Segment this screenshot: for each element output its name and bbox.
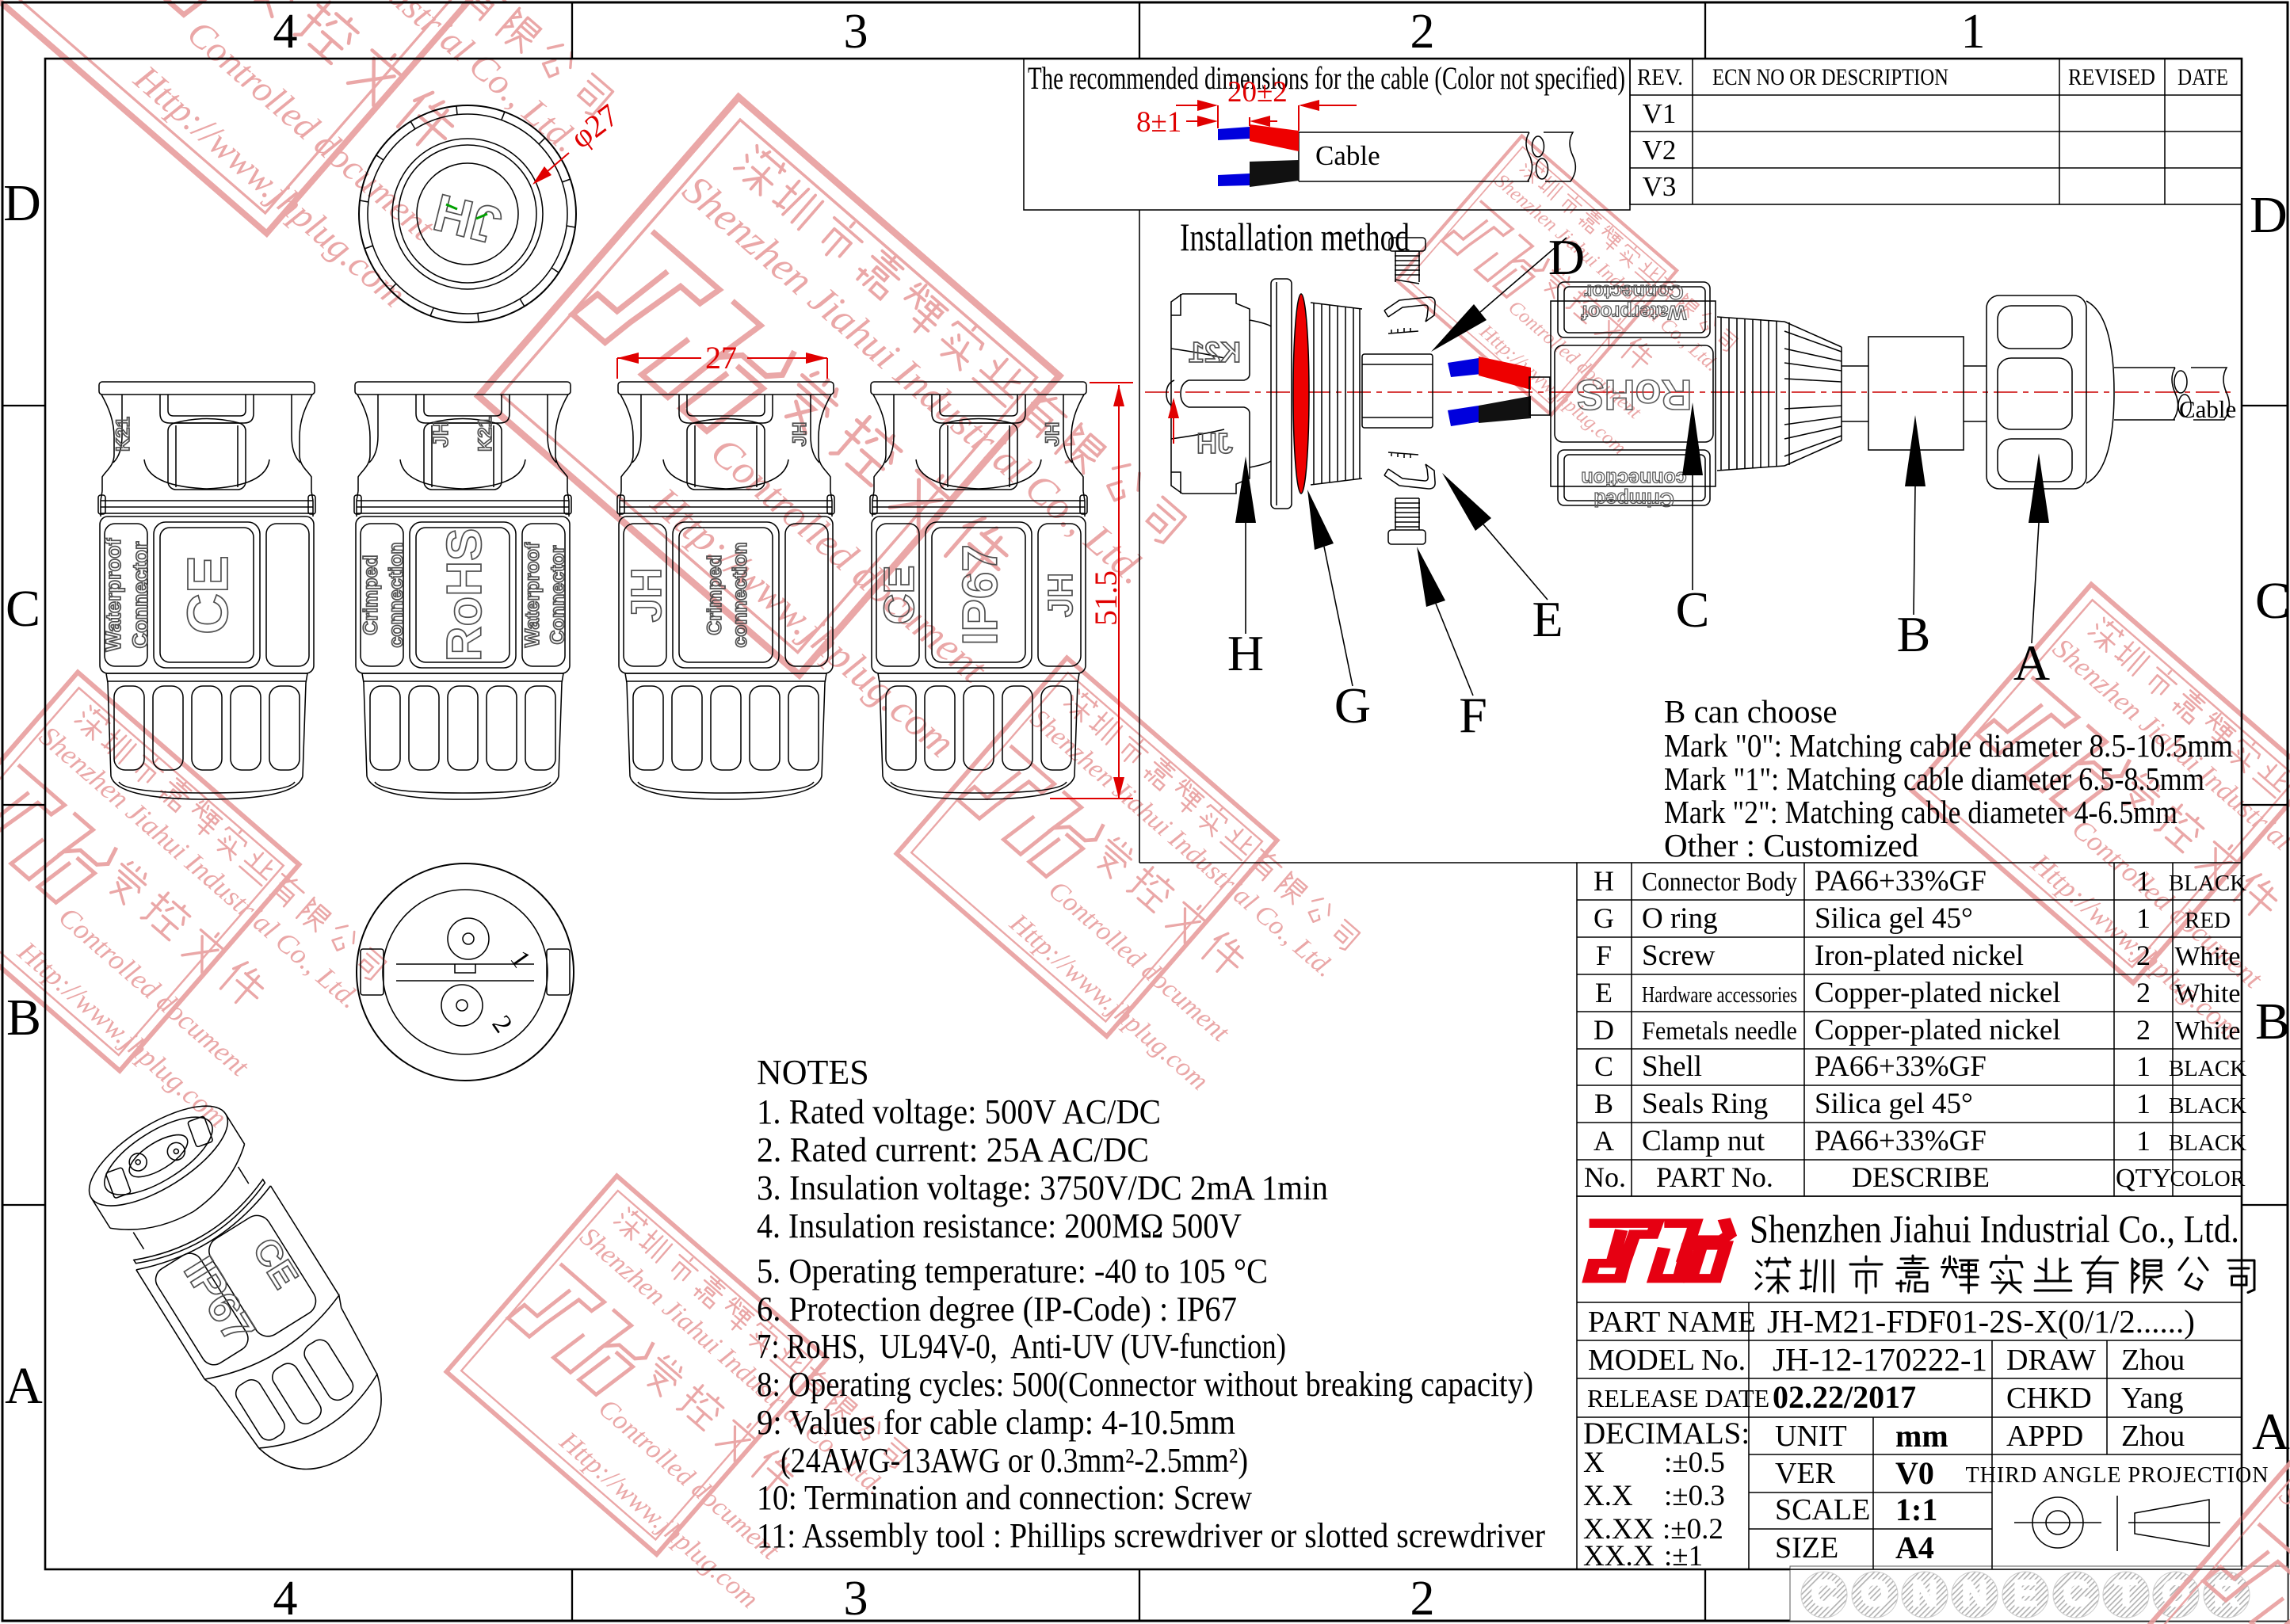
svg-text:VER: VER: [1775, 1457, 1836, 1490]
svg-text:BLACK: BLACK: [2169, 1093, 2246, 1119]
svg-text:E: E: [1532, 591, 1563, 647]
svg-text:1: 1: [2136, 1125, 2151, 1157]
svg-text:Screw: Screw: [1642, 940, 1716, 972]
svg-text:E: E: [1595, 977, 1613, 1008]
svg-text:Connector: Connector: [547, 545, 569, 644]
svg-text:Mark "0": Matching cable diame: Mark "0": Matching cable diameter 8.5-10…: [1664, 727, 2233, 764]
svg-text:DESCRIBE: DESCRIBE: [1852, 1161, 1990, 1193]
svg-text:1: 1: [2136, 1050, 2151, 1082]
svg-text:B can choose: B can choose: [1664, 693, 1838, 730]
svg-text:4: 4: [273, 5, 298, 59]
svg-text:Zhou: Zhou: [2121, 1420, 2185, 1453]
svg-text:RELEASE DATE: RELEASE DATE: [1587, 1384, 1769, 1412]
svg-text:SIZE: SIZE: [1775, 1531, 1838, 1565]
svg-text:PART No.: PART No.: [1656, 1161, 1773, 1193]
svg-text:1. Rated voltage: 500V AC/DC: 1. Rated voltage: 500V AC/DC: [757, 1092, 1161, 1131]
svg-text:CHKD: CHKD: [2006, 1382, 2092, 1415]
svg-text:Iron-plated nickel: Iron-plated nickel: [1815, 940, 2024, 972]
svg-text:5. Operating temperature: -40: 5. Operating temperature: -40 to 105 °C: [757, 1252, 1268, 1290]
svg-text:O ring: O ring: [1642, 902, 1718, 935]
svg-text:Cable: Cable: [2179, 395, 2236, 423]
svg-text:D: D: [3, 174, 41, 232]
svg-text:B: B: [2255, 993, 2290, 1050]
svg-text:Zhou: Zhou: [2121, 1344, 2185, 1377]
svg-text:Waterproof: Waterproof: [1581, 301, 1686, 323]
svg-text:JH: JH: [623, 567, 670, 622]
svg-text:Silica gel 45°: Silica gel 45°: [1815, 1088, 1973, 1120]
svg-text:1: 1: [1961, 5, 1986, 59]
svg-text:H: H: [1227, 625, 1264, 681]
svg-text:E: E: [2013, 1573, 2038, 1614]
svg-text:F: F: [1459, 687, 1487, 743]
svg-text:BLACK: BLACK: [2169, 1130, 2246, 1156]
svg-text:1: 1: [2136, 865, 2151, 897]
svg-text::±0.3: :±0.3: [1664, 1480, 1725, 1512]
svg-text:9: Values for cable clamp: 4-1: 9: Values for cable clamp: 4-10.5mm: [757, 1403, 1235, 1442]
svg-text:Clamp nut: Clamp nut: [1642, 1125, 1765, 1157]
svg-text:10: Termination and connection: 10: Termination and connection: Screw: [757, 1478, 1252, 1517]
svg-text:Seals Ring: Seals Ring: [1642, 1088, 1768, 1120]
svg-text:Other : Customized: Other : Customized: [1664, 827, 1918, 863]
svg-text:RoHS: RoHS: [1576, 371, 1693, 418]
svg-text:CE: CE: [876, 565, 923, 624]
svg-text:JH-12-170222-1: JH-12-170222-1: [1773, 1341, 1987, 1378]
svg-text:No.: No.: [1584, 1161, 1626, 1193]
svg-text:SCALE: SCALE: [1775, 1493, 1870, 1527]
svg-text:8: Operating cycles: 500(Conne: 8: Operating cycles: 500(Connector witho…: [757, 1365, 1533, 1404]
svg-text:APPD: APPD: [2006, 1420, 2083, 1453]
svg-text:ECN NO OR DESCRIPTION: ECN NO OR DESCRIPTION: [1712, 64, 1948, 90]
svg-text:Femetals needle: Femetals needle: [1642, 1017, 1797, 1046]
svg-text:White: White: [2174, 1016, 2240, 1046]
svg-text:B: B: [1897, 606, 1931, 662]
svg-text:White: White: [2174, 942, 2240, 971]
svg-text:27: 27: [705, 340, 737, 376]
svg-text:X.X: X.X: [1583, 1480, 1633, 1512]
svg-text:D: D: [1548, 229, 1585, 285]
svg-text:N: N: [1911, 1573, 1937, 1614]
svg-text:2: 2: [1410, 5, 1435, 59]
svg-text:Shenzhen Jiahui Industrial Co.: Shenzhen Jiahui Industrial Co., Ltd.: [1750, 1207, 2239, 1251]
svg-text:Crimped: Crimped: [360, 555, 382, 635]
svg-text:White: White: [2174, 979, 2240, 1008]
svg-text:3: 3: [844, 5, 868, 59]
svg-text:D: D: [2250, 186, 2288, 244]
svg-text:6. Protection degree (IP-Code): 6. Protection degree (IP-Code) : IP67: [757, 1290, 1237, 1329]
svg-text:The recommended dimensions for: The recommended dimensions for the cable…: [1028, 60, 1625, 96]
svg-text:D: D: [1593, 1014, 1614, 1046]
svg-text:3. Insulation voltage: 3750V/D: 3. Insulation voltage: 3750V/DC 2mA 1min: [757, 1168, 1328, 1207]
svg-text:2: 2: [2136, 940, 2151, 971]
svg-text:O: O: [1861, 1573, 1889, 1614]
svg-text:1: 1: [2136, 902, 2151, 934]
svg-text:NOTES: NOTES: [757, 1053, 869, 1092]
svg-text:RoHS: RoHS: [437, 528, 492, 662]
svg-text:DATE: DATE: [2177, 64, 2228, 90]
svg-text:Connector Body: Connector Body: [1642, 867, 1797, 897]
svg-text:1: 1: [2136, 1088, 2151, 1119]
svg-text:JH: JH: [429, 421, 452, 447]
svg-text:K21: K21: [113, 417, 134, 452]
svg-text:51.5: 51.5: [1088, 570, 1124, 626]
svg-text:T: T: [2115, 1573, 2137, 1614]
svg-text:BLACK: BLACK: [2169, 871, 2246, 896]
svg-text:F: F: [1596, 940, 1612, 971]
svg-text:C: C: [6, 580, 40, 638]
svg-text:Copper-plated nickel: Copper-plated nickel: [1815, 977, 2061, 1009]
svg-text:Silica gel 45°: Silica gel 45°: [1815, 902, 1973, 935]
svg-text:G: G: [1334, 677, 1371, 734]
svg-text:N: N: [1961, 1573, 1987, 1614]
svg-text:11: Assembly tool : Phillips s: 11: Assembly tool : Phillips screwdriver…: [757, 1516, 1545, 1555]
svg-text:Shell: Shell: [1642, 1050, 1702, 1083]
svg-text:H: H: [1593, 865, 1614, 897]
svg-text:Mark "2": Matching cable diame: Mark "2": Matching cable diameter 4-6.5m…: [1664, 794, 2177, 830]
svg-text:A: A: [1593, 1125, 1614, 1157]
svg-text:PA66+33%GF: PA66+33%GF: [1815, 1125, 1987, 1157]
svg-text:02.22/2017: 02.22/2017: [1773, 1379, 1916, 1415]
svg-text:QTY: QTY: [2116, 1164, 2171, 1193]
svg-text:Connector: Connector: [128, 541, 152, 648]
svg-text::±1: :±1: [1664, 1540, 1703, 1573]
svg-text:JH-M21-FDF01-2S-X(0/1/2......): JH-M21-FDF01-2S-X(0/1/2......): [1767, 1303, 2195, 1340]
svg-text:B: B: [1594, 1088, 1613, 1119]
svg-text:Waterproof: Waterproof: [521, 542, 544, 647]
svg-text::±0.5: :±0.5: [1664, 1447, 1725, 1479]
svg-text:Installation method: Installation method: [1180, 215, 1410, 259]
svg-text:(24AWG-13AWG or 0.3mm²-2.5mm²): (24AWG-13AWG or 0.3mm²-2.5mm²): [781, 1441, 1248, 1480]
svg-text:C: C: [1676, 581, 1710, 638]
svg-text:Cable: Cable: [1315, 140, 1380, 171]
svg-text:Copper-plated nickel: Copper-plated nickel: [1815, 1014, 2061, 1046]
svg-text:X: X: [1583, 1447, 1605, 1479]
svg-text:PA66+33%GF: PA66+33%GF: [1815, 1050, 1987, 1083]
svg-text:PA66+33%GF: PA66+33%GF: [1815, 865, 1987, 898]
svg-text:UNIT: UNIT: [1775, 1420, 1847, 1453]
svg-text:JH: JH: [1041, 573, 1080, 617]
svg-text:CE: CE: [177, 555, 240, 635]
svg-text:JH: JH: [1197, 427, 1233, 459]
svg-text:A: A: [5, 1357, 43, 1415]
svg-text:20±2: 20±2: [1227, 76, 1288, 109]
svg-text:1:1: 1:1: [1895, 1492, 1937, 1527]
svg-text:JH: JH: [1042, 422, 1063, 447]
svg-text:Yang: Yang: [2121, 1382, 2184, 1415]
svg-text:THIRD ANGLE PROJECTION: THIRD ANGLE PROJECTION: [1966, 1463, 2269, 1488]
svg-text:B: B: [6, 989, 41, 1046]
svg-text:JH: JH: [789, 422, 811, 447]
svg-text:C: C: [1811, 1573, 1837, 1614]
svg-text:2: 2: [2136, 977, 2151, 1008]
svg-text:DECIMALS:: DECIMALS:: [1583, 1416, 1750, 1451]
svg-text:IP67: IP67: [953, 544, 1008, 646]
svg-text:A4: A4: [1895, 1530, 1934, 1565]
svg-text:REVISED: REVISED: [2068, 64, 2155, 90]
svg-text:V0: V0: [1895, 1455, 1934, 1491]
svg-text:K21: K21: [475, 417, 496, 452]
svg-text:BLACK: BLACK: [2169, 1056, 2246, 1081]
svg-text:C: C: [1594, 1050, 1613, 1082]
svg-text:PART NAME: PART NAME: [1588, 1306, 1756, 1339]
svg-text:C: C: [2255, 572, 2290, 630]
svg-text:V2: V2: [1643, 135, 1677, 166]
svg-text:COLOR: COLOR: [2170, 1167, 2246, 1191]
svg-text:V1: V1: [1643, 98, 1677, 129]
svg-text:G: G: [1593, 902, 1614, 934]
svg-text:Mark "1": Matching cable diame: Mark "1": Matching cable diameter 6.5-8.…: [1664, 761, 2204, 797]
svg-text:RED: RED: [2185, 908, 2231, 933]
svg-text:REV.: REV.: [1637, 64, 1683, 90]
svg-text:connection: connection: [1581, 467, 1686, 490]
svg-text:mm: mm: [1895, 1418, 1948, 1454]
svg-text:8±1: 8±1: [1136, 106, 1181, 139]
svg-text:connection: connection: [729, 542, 751, 647]
svg-text:Connector: Connector: [1584, 280, 1683, 303]
svg-text:7: RoHS, UL94V-0, Anti-UV (U: 7: RoHS, UL94V-0, Anti-UV (UV-function): [757, 1327, 1286, 1366]
svg-text:2: 2: [1410, 1572, 1435, 1624]
svg-text:MODEL No.: MODEL No.: [1588, 1344, 1746, 1377]
svg-text:2: 2: [2136, 1014, 2151, 1046]
svg-text:4: 4: [273, 1572, 298, 1624]
svg-text:XX.X: XX.X: [1583, 1540, 1655, 1573]
svg-text:Hardware accessories: Hardware accessories: [1642, 982, 1797, 1008]
svg-text:4. Insulation resistance: 200M: 4. Insulation resistance: 200MΩ 500V: [757, 1207, 1242, 1245]
svg-text:connection: connection: [385, 542, 407, 647]
svg-text:A: A: [2013, 635, 2050, 691]
svg-text:C: C: [2063, 1573, 2089, 1614]
svg-text:Crimped: Crimped: [704, 555, 726, 635]
svg-text:3: 3: [844, 1572, 868, 1624]
svg-text:2. Rated current: 25A AC/DC: 2. Rated current: 25A AC/DC: [757, 1130, 1149, 1169]
svg-text:Crimped: Crimped: [1593, 488, 1674, 510]
svg-text:K21: K21: [1189, 336, 1241, 368]
svg-text:Waterproof: Waterproof: [101, 538, 125, 652]
svg-text:V3: V3: [1643, 171, 1677, 202]
svg-text:DRAW: DRAW: [2006, 1344, 2096, 1377]
svg-text:A: A: [2252, 1403, 2290, 1461]
